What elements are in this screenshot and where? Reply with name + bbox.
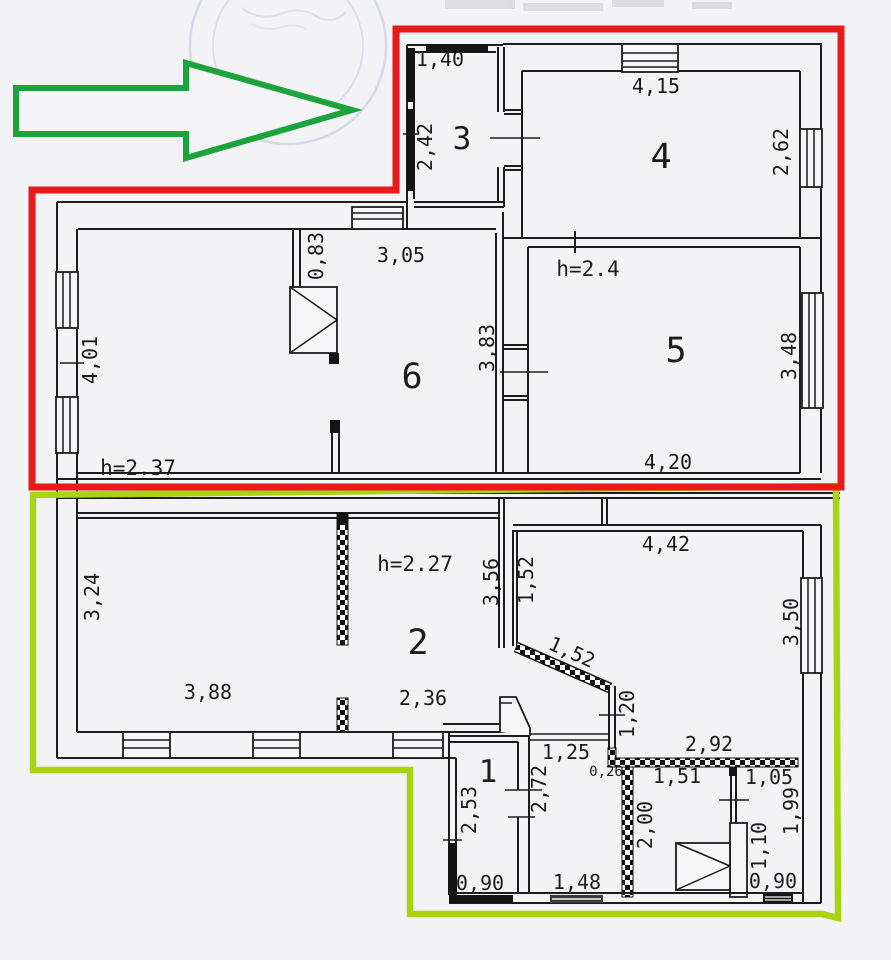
room2-checkered-wall-cap — [337, 513, 348, 525]
room5-number: 5 — [665, 331, 686, 371]
dim-bathroom-bottom: 0,90 — [749, 869, 797, 893]
dim-room2-right: 3,56 — [479, 558, 503, 606]
dim-bathroom-right: 1,99 — [779, 787, 803, 835]
room1-number: 1 — [479, 754, 498, 790]
floor-plan-svg: 1,40 2,42 3 4,15 2,62 4 h=2.4 5 3,48 4,2… — [0, 0, 891, 960]
room2-checkered-stub — [337, 698, 348, 732]
room6-stub-wall — [293, 229, 300, 287]
northeast-window — [801, 578, 822, 673]
room6-left-window-2 — [56, 397, 78, 453]
room5-walls — [496, 212, 821, 473]
dim-room4-top: 4,15 — [632, 74, 680, 98]
floor-plan-scan: 1,40 2,42 3 4,15 2,62 4 h=2.4 5 3,48 4,2… — [0, 0, 891, 960]
dim-bathroom-inner: 1,10 — [747, 822, 771, 870]
pantry-bathroom-partition — [731, 768, 736, 823]
dim-northeast-left: 1,52 — [514, 556, 538, 604]
dim-room5-bottom: 4,20 — [644, 450, 692, 474]
dim-hallway-bottom: 1,48 — [553, 870, 601, 894]
dim-west-room-left: 3,24 — [80, 573, 104, 621]
dim-room6-stub: 0,83 — [304, 232, 328, 280]
dim-room1-right: 2,72 — [527, 765, 551, 813]
dim-room2-bottom: 2,36 — [399, 686, 447, 710]
pantry-left-checkered-wall — [622, 767, 633, 897]
dim-pantry-wall-top: 2,92 — [685, 732, 733, 756]
dim-room6-left: 4,01 — [78, 336, 102, 384]
dim-hallway-wall: 1,20 — [615, 690, 639, 738]
pantry-stove — [676, 843, 730, 890]
bottom-door-fill — [449, 895, 513, 903]
room3-number: 3 — [453, 121, 472, 157]
room4-right-window — [800, 129, 822, 187]
lower-unit-labels: 3,24 3,88 h=2.27 2 2,36 3,56 1,52 4,42 3… — [80, 532, 803, 895]
dim-hallway-offset: 0,26 — [589, 764, 623, 780]
dim-pantry-left: 2,00 — [633, 801, 657, 849]
bathroom-bottom-window — [763, 894, 793, 903]
dim-bathroom-top: 1,05 — [745, 765, 793, 789]
dim-room5-left: 3,83 — [475, 324, 499, 372]
room5-height-label: h=2.4 — [556, 257, 619, 281]
dim-room1-bottom: 0,90 — [456, 871, 504, 895]
dim-room3-left: 2,42 — [413, 123, 437, 171]
room2-number: 2 — [407, 623, 428, 663]
dim-room6-top: 3,05 — [377, 243, 425, 267]
bottom-window-3 — [393, 732, 443, 758]
upper-unit-walls — [56, 44, 840, 758]
scan-smudges — [445, 0, 732, 11]
bathroom-inner-wall — [730, 823, 747, 897]
dim-room1-opening: 1,25 — [542, 740, 590, 764]
partition-cap — [729, 767, 737, 776]
bottom-window-2 — [253, 732, 300, 758]
bottom-window-1 — [123, 732, 170, 758]
room2-checkered-wall — [337, 513, 348, 645]
stamp-handwriting-2 — [252, 24, 306, 29]
upper-height-label: h=2.37 — [100, 456, 176, 480]
room6-left-window — [56, 272, 78, 328]
room6-top-window — [352, 207, 403, 229]
room5-right-window — [802, 293, 823, 408]
dim-pantry-top: 1,51 — [653, 764, 701, 788]
lower-height-label: h=2.27 — [377, 552, 453, 576]
dim-west-room-bottom: 3,88 — [184, 680, 232, 704]
room6-stove — [290, 287, 337, 353]
room4-number: 4 — [650, 137, 671, 177]
northeast-room-walls — [513, 497, 821, 646]
dim-northeast-top: 4,42 — [642, 532, 690, 556]
dim-room5-right: 3,48 — [777, 332, 801, 380]
dim-northeast-right: 3,50 — [779, 598, 803, 646]
room6-bottom-stub-cap — [330, 420, 340, 433]
dim-room4-right: 2,62 — [769, 128, 793, 176]
room6-number: 6 — [401, 357, 422, 397]
lower-top-wall — [77, 513, 500, 518]
room3-left-window-fill — [407, 48, 415, 102]
room6-stove-flue — [329, 353, 339, 364]
dim-room1-left: 2,53 — [457, 786, 481, 834]
room4-top-window — [622, 44, 678, 72]
dim-room3-top: 1,40 — [416, 47, 464, 71]
stamp-handwriting — [242, 8, 346, 20]
